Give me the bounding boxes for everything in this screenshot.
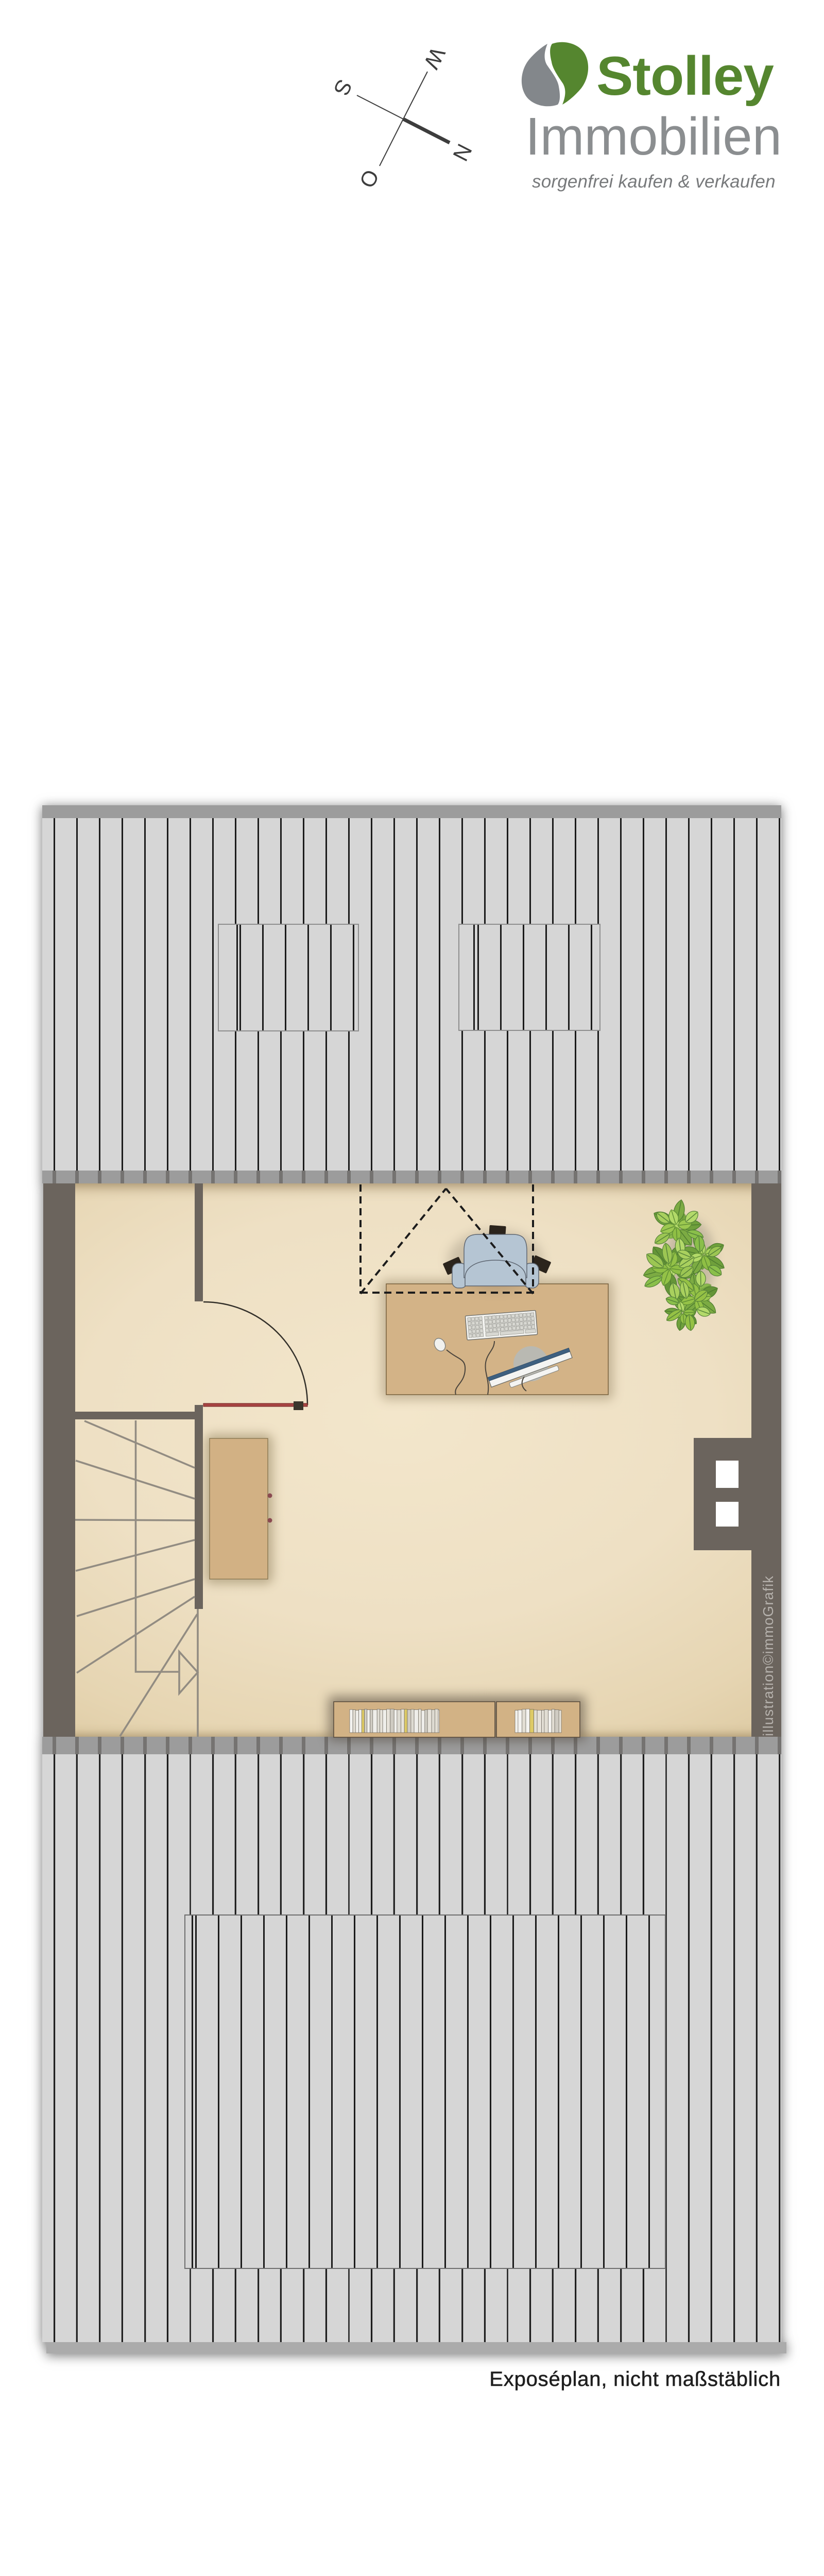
- svg-text:W: W: [419, 44, 450, 73]
- svg-text:O: O: [355, 166, 384, 192]
- svg-text:S: S: [329, 76, 357, 99]
- svg-text:illustration©immoGrafik: illustration©immoGrafik: [760, 1575, 776, 1736]
- svg-text:N: N: [448, 140, 477, 165]
